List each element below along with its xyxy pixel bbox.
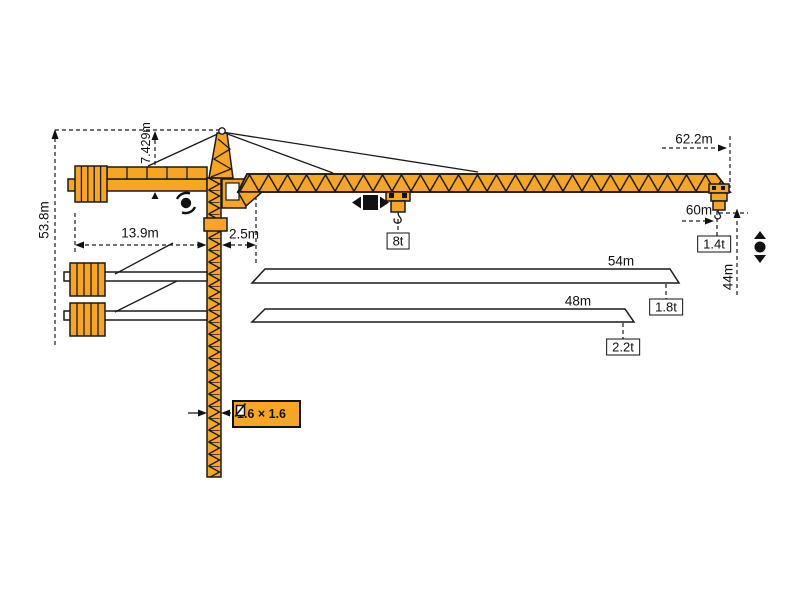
trolley-travel-icon bbox=[352, 195, 389, 210]
jib-length-options bbox=[252, 269, 679, 322]
jib48-length-label: 48m bbox=[565, 294, 591, 308]
arrow-left bbox=[222, 242, 231, 249]
mid-trolley bbox=[386, 192, 410, 223]
counterweight-blocks bbox=[75, 166, 107, 202]
jib54-length-label: 54m bbox=[608, 254, 634, 268]
option-counterweight-1 bbox=[70, 263, 105, 296]
counter-jib bbox=[68, 166, 207, 202]
tip-load-tag: 1.4t bbox=[697, 236, 731, 253]
trolley-body bbox=[711, 193, 727, 201]
radius60-label: 60m bbox=[686, 203, 712, 217]
trolley-wheel bbox=[721, 186, 725, 190]
jib54-tip-load-tag: 1.8t bbox=[649, 299, 683, 316]
trolley-symbol bbox=[363, 195, 378, 210]
arrow-right bbox=[718, 145, 727, 152]
tower-head bbox=[209, 133, 233, 178]
hook-block bbox=[713, 201, 725, 210]
hoist-icon bbox=[754, 231, 766, 263]
arrow-right bbox=[198, 410, 207, 417]
hook-block bbox=[391, 201, 405, 212]
hook-height-label: 44m bbox=[721, 264, 735, 290]
arrow-right bbox=[705, 218, 714, 225]
arrow-left bbox=[221, 410, 230, 417]
counter-jib-options bbox=[64, 243, 207, 336]
leader-line-2 bbox=[115, 281, 177, 312]
arrow-right bbox=[247, 242, 256, 249]
slewing-arc-bottom bbox=[182, 207, 195, 213]
arrow-left bbox=[352, 197, 361, 209]
jib-lattice bbox=[238, 174, 730, 192]
total-height-label: 53.8m bbox=[37, 201, 51, 239]
mast-section-box: 1.6 × 1.6 bbox=[232, 400, 301, 428]
tail-radius-label: 2.5m bbox=[229, 227, 259, 241]
arrow-right bbox=[198, 242, 207, 249]
slewing-arc-top bbox=[177, 193, 190, 199]
option-counterweight-2 bbox=[70, 303, 105, 336]
crane-diagram: 53.8m 7.429m 13.9m 2.5m 8t 62.2m 60m 1.4… bbox=[0, 0, 800, 600]
cross-section-icon bbox=[234, 402, 247, 418]
counter-jib-length-label: 13.9m bbox=[121, 226, 159, 240]
jib-tie-2 bbox=[222, 132, 478, 172]
leader-line-1 bbox=[115, 243, 173, 274]
arrow-up bbox=[754, 231, 766, 239]
max-radius-label: 62.2m bbox=[675, 132, 713, 146]
jib48-tip-load-tag: 2.2t bbox=[606, 339, 640, 356]
hook bbox=[715, 210, 721, 219]
trolley-wheel bbox=[402, 193, 407, 198]
counter-jib-tie bbox=[148, 132, 222, 166]
jib-tie-1 bbox=[222, 132, 333, 173]
max-load-tag: 8t bbox=[387, 233, 410, 250]
apex-pin bbox=[219, 128, 225, 134]
slewing-dot bbox=[181, 198, 191, 208]
jib-outline-48m bbox=[252, 309, 634, 322]
main-jib bbox=[238, 174, 730, 206]
jib-outline-54m bbox=[252, 269, 679, 283]
arrow-down bbox=[754, 255, 766, 263]
trolley-wheel bbox=[712, 186, 716, 190]
hoist-dot bbox=[755, 242, 766, 253]
slewing-unit bbox=[204, 218, 227, 231]
arrow-left bbox=[75, 242, 84, 249]
slewing-icon bbox=[177, 193, 195, 213]
arrow-up bbox=[152, 192, 159, 199]
trolley-wheel bbox=[389, 193, 394, 198]
head-height-label: 7.429m bbox=[140, 122, 153, 164]
counter-jib-girder bbox=[107, 167, 207, 179]
